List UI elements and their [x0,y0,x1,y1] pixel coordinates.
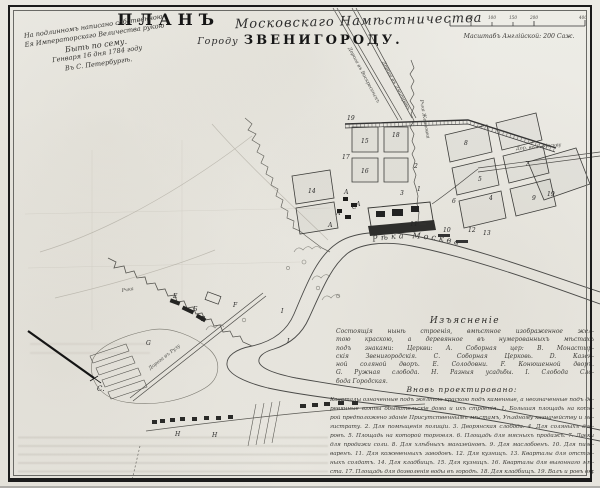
legend-line: тою краскою, а деревянное въ нумерованны… [336,336,594,344]
projected-line: ровъ. 5. Площадь на которой торговля. 6.… [330,432,594,441]
legend-line: G. Ружная слобода. Н. Разныя усадьбы. I.… [336,369,594,377]
projected-line: рой предположено зданіе Присутственнымъ … [330,414,594,423]
projected-line: Кварталы означенные подъ желтою краскою … [330,396,594,405]
map-label: 11 [410,221,418,228]
stream-zhernovka [410,60,419,222]
map-page: С. Рѣка Москва Дор. въ Г. Москву Дорога … [0,0,600,488]
map-label: Б [192,306,198,313]
projected-line: гистрату. 2. Для помѣщенія полиціи. 3. Д… [330,423,594,432]
map-label: 18 [392,132,400,139]
projected-title: Вновь проектировано: [330,385,594,394]
scale-label: Масштабъ Англійской: 200 Саж. [448,33,590,40]
legend-line: Состоящія нынѣ строенія, вмѣстное изобра… [336,328,594,336]
map-label: 9 [532,195,536,202]
projected-section: Вновь проектировано: Кварталы означенные… [330,385,594,477]
scale-tick: 100 [488,15,496,20]
map-label: А [327,222,333,229]
road-north2-label: Дорога въ Дмитровъ [380,59,411,111]
map-label: 5 [478,176,482,183]
legend-line: ной соляной дворъ. Е. Солодовни. F. Коню… [336,361,594,369]
scale-ruler: 50 100 150 200 400 [448,13,590,31]
projected-body: Кварталы означенные подъ желтою краскою … [330,396,594,477]
village-houses [152,401,358,424]
scale-bar: 50 100 150 200 400 Масштабъ Англійской: … [448,13,590,40]
map-label: 12 [468,227,476,234]
map-label: F [232,302,238,309]
map-label: 15 [361,138,369,145]
road-sw-label: Дорога въ Рузу [147,343,182,372]
map-label: Е [172,293,178,300]
map-label: 1 [417,186,421,193]
ink-showthrough [30,336,150,356]
legend-title: Изъясненіе [336,316,594,326]
stream-label: Рчка Жерновка [418,98,431,139]
map-label: 19 [547,191,555,198]
map-label: 3 [400,190,404,197]
map-label: 8 [464,140,468,147]
stream2-label: Рчка [120,286,134,294]
map-label: В [200,316,206,323]
map-label: 13 [483,230,491,237]
map-label: 10 [443,227,451,234]
compass-label: С. [97,385,105,393]
map-label: 6 [452,198,456,205]
map-label: 7 [525,161,529,168]
vegetation [206,247,340,331]
kremlin [368,202,436,236]
map-label: 2 [413,163,418,170]
ruza-road [130,293,266,401]
map-label: С [352,204,357,211]
subtitle-prefix: Городу [197,36,238,47]
projected-line: ста. 17. Площадь для дозволенія воды въ … [330,468,594,477]
projected-line: ныхъ солдатъ. 14. Для кладбищъ. 15. Для … [330,459,594,468]
legend-line: подъ знаками: Церкви: А. Соборная цер: В… [336,345,594,353]
map-label: 14 [308,188,316,195]
map-label: 17 [342,154,350,161]
map-label: 16 [361,168,369,175]
map-label: 4 [488,195,493,202]
projected-line: ревянные взяты обывательскіе дома и ихъ … [330,405,594,414]
subtitle-city: ЗВЕНИГОРОДУ. [244,33,403,48]
map-label: А [343,189,349,196]
legend: Изъясненіе Состоящія нынѣ строенія, вмѣс… [336,316,594,386]
map-label: I [280,308,284,315]
map-label: 19 [347,115,355,122]
map-label: А [335,210,341,217]
scale-tick: 50 [468,15,474,20]
projected-line: варенъ. 11. Для кожевенныхъ заводовъ. 12… [330,450,594,459]
projected-line: для продажи соли. 8. Для хлѣбныхъ магазе… [330,441,594,450]
legend-line: скія Звенигородскія. С. Соборная Церковь… [336,353,594,361]
legend-body: Состоящія нынѣ строенія, вмѣстное изобра… [336,328,594,386]
scale-tick: 150 [509,15,517,20]
scale-tick: 400 [578,15,587,20]
scale-tick: 200 [529,15,538,20]
ink-showthrough [18,430,328,474]
